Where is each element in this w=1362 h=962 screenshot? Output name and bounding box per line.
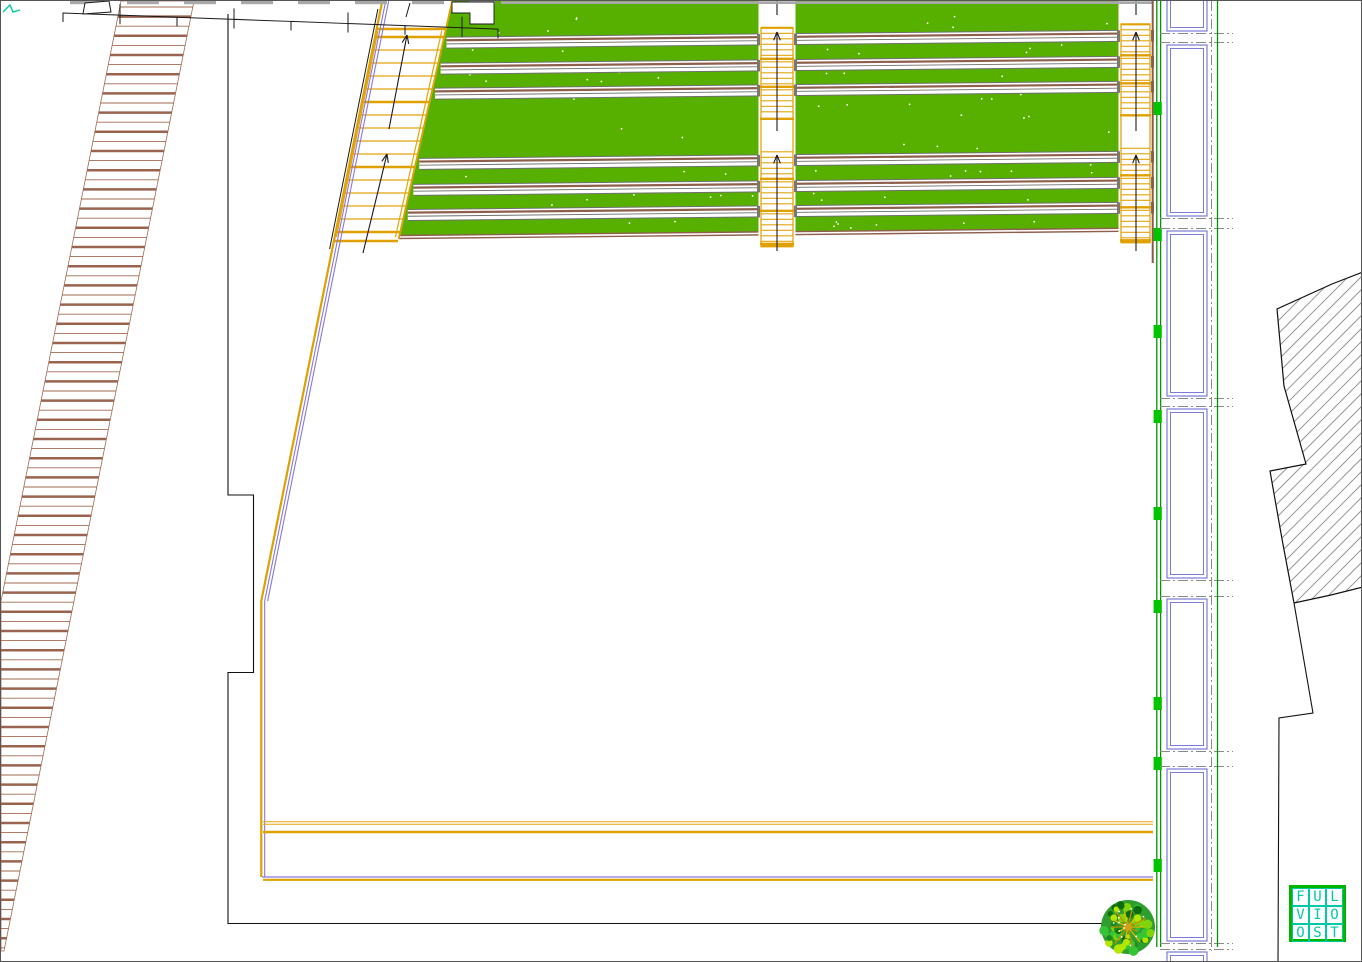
logo-letter: T	[1326, 924, 1343, 942]
panel-column	[1153, 1, 1233, 962]
stair-channel-mid	[757, 1, 797, 251]
cad-canvas	[1, 1, 1362, 962]
drawing-viewport[interactable]: F U L V I O O S T	[0, 0, 1362, 962]
logo-squiggle	[1, 1, 23, 17]
logo-letter: L	[1326, 888, 1343, 906]
logo-letter: V	[1292, 906, 1309, 924]
logo-letter: U	[1309, 888, 1326, 906]
logo-letter: I	[1309, 906, 1326, 924]
tree-symbol	[1099, 900, 1155, 956]
access-ramp	[1, 1, 211, 951]
logo-letter: O	[1326, 906, 1343, 924]
logo-letter: F	[1292, 888, 1309, 906]
logo-letter: O	[1292, 924, 1309, 942]
logo-letter: S	[1309, 924, 1326, 942]
stair-channel-right	[1117, 1, 1154, 251]
architect-logo: F U L V I O O S T	[1289, 885, 1346, 942]
